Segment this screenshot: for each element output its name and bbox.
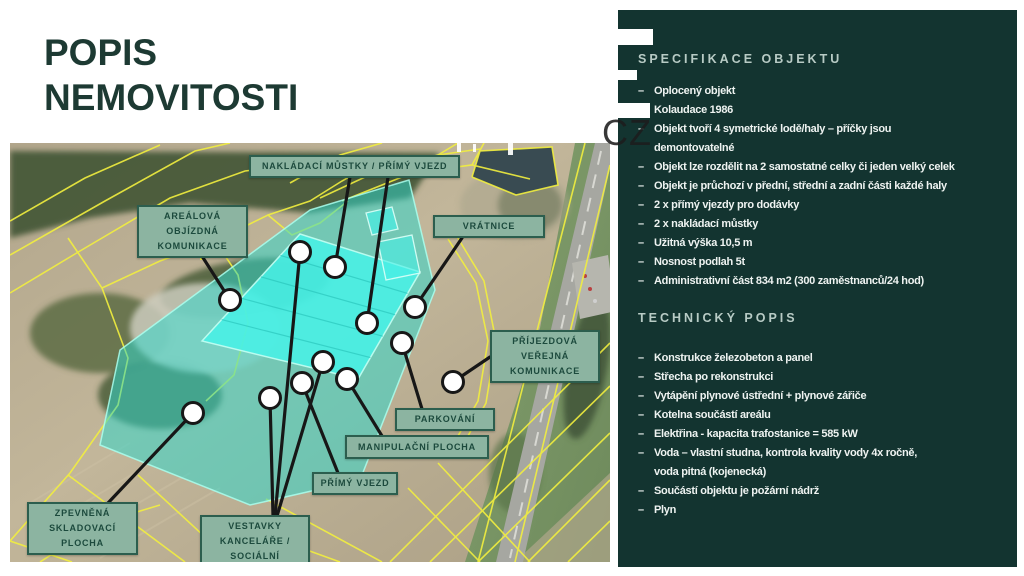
spec-item: –Voda – vlastní studna, kontrola kvality… xyxy=(638,444,999,482)
map-label-vestavky: VESTAVKY KANCELÁŘE / SOCIÁLNÍ xyxy=(200,515,310,562)
map-label-manipulacni-plocha: MANIPULAČNÍ PLOCHA xyxy=(345,435,489,459)
spec-item: –Administrativní část 834 m2 (300 zaměst… xyxy=(638,272,999,291)
spec-item: –Elektřina - kapacita trafostanice = 585… xyxy=(638,425,999,444)
spec-item: –Kolaudace 1986 xyxy=(638,101,999,120)
watermark-logo-bar xyxy=(618,29,653,45)
spec-item: –Součástí objektu je požární nádrž xyxy=(638,482,999,501)
section-specifikace: SPECIFIKACE OBJEKTU –Oplocený objekt–Kol… xyxy=(638,52,999,291)
map-label-arealova-komunikace: AREÁLOVÁ OBJÍZDNÁ KOMUNIKACE xyxy=(137,205,248,258)
map-label-primy-vjezd: PŘÍMÝ VJEZD xyxy=(312,472,398,495)
page-title: POPIS NEMOVITOSTI xyxy=(44,30,298,120)
spec-item: –Střecha po rekonstrukci xyxy=(638,368,999,387)
map-label-prijezdova-komunikace: PŘÍJEZDOVÁ VEŘEJNÁ KOMUNIKACE xyxy=(490,330,600,383)
spec-item: –Konstrukce železobeton a panel xyxy=(638,349,999,368)
watermark-logo-bar xyxy=(618,70,637,80)
spec-item: –Objekt lze rozdělit na 2 samostatné cel… xyxy=(638,158,999,177)
spec-item: –Nosnost podlah 5t xyxy=(638,253,999,272)
spec-item: –Vytápění plynové ústřední + plynové zář… xyxy=(638,387,999,406)
spec-item: –Objekt tvoří 4 symetrické lodě/haly – p… xyxy=(638,120,999,158)
spec-list: –Konstrukce železobeton a panel–Střecha … xyxy=(638,349,999,520)
section-heading: TECHNICKÝ POPIS xyxy=(638,311,999,327)
specs-panel: SPECIFIKACE OBJEKTU –Oplocený objekt–Kol… xyxy=(618,10,1017,567)
map-label-parkovani: PARKOVÁNÍ xyxy=(395,408,495,431)
title-line-2: NEMOVITOSTI xyxy=(44,75,298,120)
map-label-vratnice: VRÁTNICE xyxy=(433,215,545,238)
spec-item: –2 x přímý vjezdy pro dodávky xyxy=(638,196,999,215)
bullet-dash: – xyxy=(638,253,654,272)
section-technicky-popis: TECHNICKÝ POPIS –Konstrukce železobeton … xyxy=(638,311,999,520)
bullet-dash: – xyxy=(638,349,654,368)
spec-item: –Objekt je průchozí v přední, střední a … xyxy=(638,177,999,196)
bullet-dash: – xyxy=(638,425,654,444)
spec-item: –Plyn xyxy=(638,501,999,520)
spec-list: –Oplocený objekt–Kolaudace 1986–Objekt t… xyxy=(638,82,999,291)
spec-item: –2 x nakládací můstky xyxy=(638,215,999,234)
map-label-zpevnena-plocha: ZPEVNĚNÁ SKLADOVACÍ PLOCHA xyxy=(27,502,138,555)
map-label-nakladaci-mustky: NAKLÁDACÍ MŮSTKY / PŘÍMÝ VJEZD xyxy=(249,155,460,178)
bullet-dash: – xyxy=(638,215,654,234)
aerial-map: NAKLÁDACÍ MŮSTKY / PŘÍMÝ VJEZDAREÁLOVÁ O… xyxy=(10,143,610,562)
spec-item: –Oplocený objekt xyxy=(638,82,999,101)
bullet-dash: – xyxy=(638,196,654,215)
title-line-1: POPIS xyxy=(44,30,298,75)
bullet-dash: – xyxy=(638,444,654,463)
bullet-dash: – xyxy=(638,82,654,101)
bullet-dash: – xyxy=(638,368,654,387)
watermark-cz: CZ xyxy=(602,112,652,154)
bullet-dash: – xyxy=(638,158,654,177)
bullet-dash: – xyxy=(638,387,654,406)
bullet-dash: – xyxy=(638,482,654,501)
bullet-dash: – xyxy=(638,177,654,196)
bullet-dash: – xyxy=(638,406,654,425)
bullet-dash: – xyxy=(638,272,654,291)
bullet-dash: – xyxy=(638,501,654,520)
section-heading: SPECIFIKACE OBJEKTU xyxy=(638,52,999,68)
bullet-dash: – xyxy=(638,234,654,253)
map-label-layer: NAKLÁDACÍ MŮSTKY / PŘÍMÝ VJEZDAREÁLOVÁ O… xyxy=(10,143,610,562)
spec-item: –Užitná výška 10,5 m xyxy=(638,234,999,253)
spec-item: –Kotelna součástí areálu xyxy=(638,406,999,425)
